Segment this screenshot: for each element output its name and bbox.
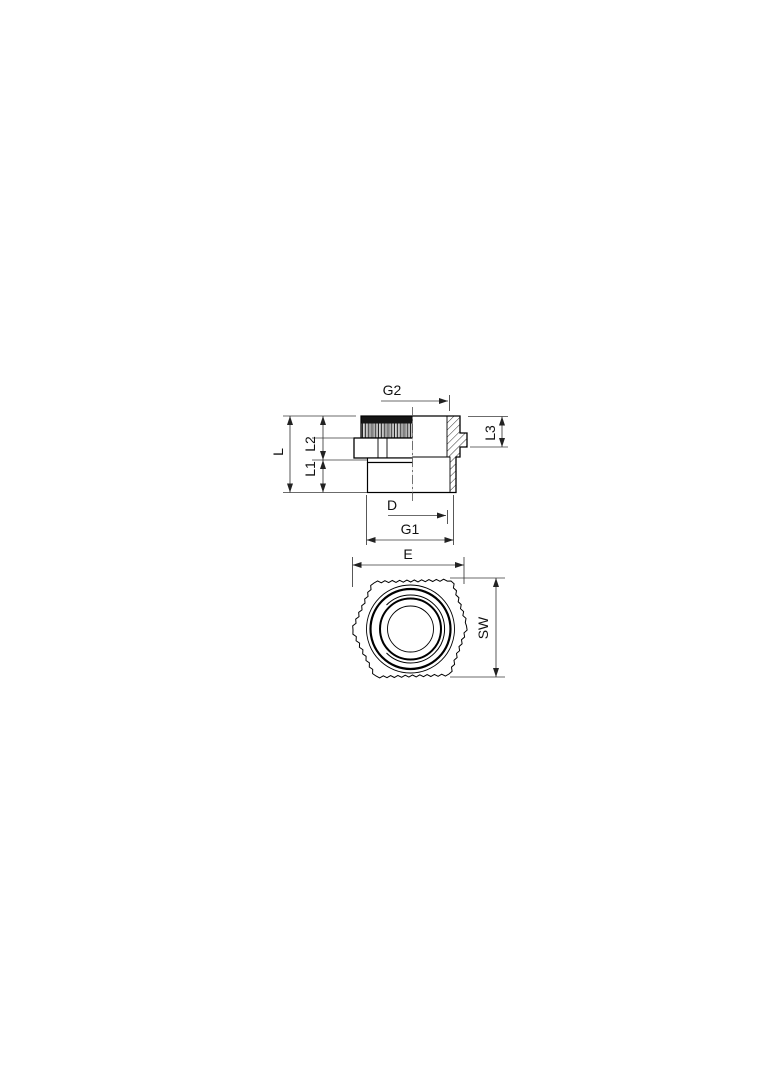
- label-d: D: [387, 497, 397, 513]
- label-l1: L1: [302, 461, 318, 477]
- lower-body-outline: [368, 463, 414, 493]
- label-g1: G1: [401, 521, 420, 537]
- dimension-l: L: [270, 416, 367, 493]
- flange-outline: [354, 438, 413, 458]
- dimension-d: D: [387, 497, 448, 524]
- label-e: E: [403, 546, 412, 562]
- label-l: L: [270, 448, 286, 456]
- dimension-l3: L3: [468, 417, 508, 448]
- side-section-view: [354, 407, 467, 501]
- label-g2: G2: [383, 382, 402, 398]
- dimension-g1: G1: [367, 495, 454, 545]
- label-l3: L3: [482, 425, 498, 441]
- thread-block-dark-band: [361, 416, 413, 424]
- section-hatch: [447, 416, 467, 493]
- thread-block-fill: [361, 423, 413, 438]
- label-l2: L2: [302, 436, 318, 452]
- technical-drawing: G2 L L2 L1 L3 D: [0, 0, 784, 1066]
- dimension-g2: G2: [381, 382, 450, 411]
- bottom-hex-view: [353, 579, 467, 678]
- label-sw: SW: [475, 616, 491, 639]
- lip-outline: [368, 458, 414, 463]
